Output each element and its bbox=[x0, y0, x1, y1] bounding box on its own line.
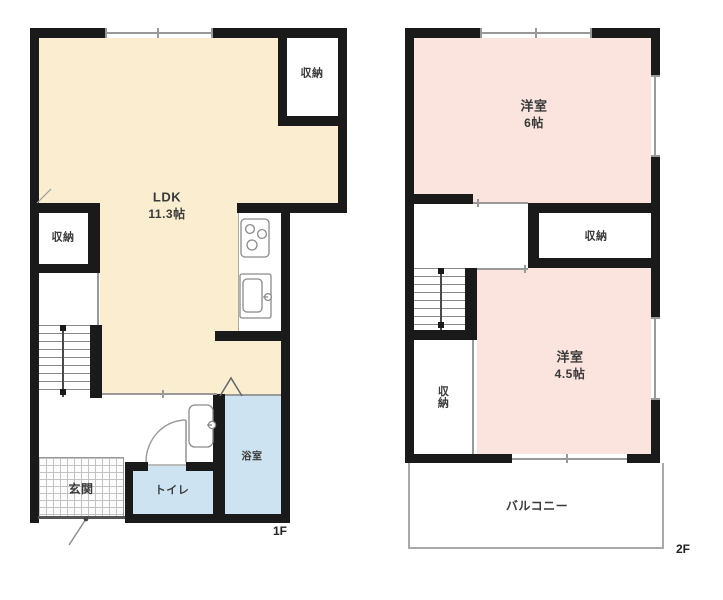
opening-tick bbox=[524, 265, 526, 273]
stair-post bbox=[438, 322, 444, 328]
window-tick bbox=[651, 398, 660, 400]
door-arc-icon bbox=[144, 418, 188, 464]
wall-left bbox=[30, 28, 39, 523]
wall-closet-tr-bottom bbox=[282, 116, 347, 126]
wall-bottom bbox=[125, 514, 290, 523]
wall-stairs-bottom bbox=[405, 330, 477, 340]
opening-hall-bedroom2 bbox=[477, 268, 528, 270]
wall-toilet-left bbox=[125, 462, 133, 523]
sliding-door-tick bbox=[162, 390, 164, 398]
window-tick bbox=[590, 28, 592, 38]
closet-top-label: 収納 bbox=[301, 68, 324, 81]
partition-hall-ldk bbox=[97, 273, 99, 325]
window-center-line bbox=[105, 32, 213, 34]
opening-tick bbox=[477, 199, 479, 207]
floor-plan-canvas: LDK 11.3帖 収納 収納 玄関 トイレ 浴室 1F bbox=[0, 0, 723, 600]
ldk-label: LDK bbox=[153, 191, 181, 206]
bedroom1-size-label: 6帖 bbox=[524, 117, 544, 131]
wall-left bbox=[405, 28, 414, 463]
window-tick bbox=[105, 28, 107, 38]
partition-closet-lower bbox=[472, 340, 474, 454]
wall-stairs-right bbox=[90, 325, 102, 398]
wall-closet-l-right bbox=[88, 203, 100, 273]
window-tick bbox=[651, 75, 660, 77]
window-tick bbox=[535, 28, 537, 38]
wall-bedroom1-bottom bbox=[405, 194, 473, 204]
stair-post bbox=[438, 268, 444, 274]
window-tick bbox=[651, 317, 660, 319]
bath-label: 浴室 bbox=[242, 451, 263, 463]
kitchen-fixtures-icon bbox=[239, 217, 275, 321]
wall-bottom-right bbox=[627, 454, 660, 463]
ldk-size-label: 11.3帖 bbox=[148, 208, 185, 222]
wall-step bbox=[237, 203, 347, 213]
closet-lower-label: 収納 bbox=[436, 386, 449, 409]
stair-rail bbox=[440, 268, 442, 330]
sliding-door-ldk bbox=[102, 393, 217, 395]
bedroom2-label: 洋室 bbox=[556, 351, 583, 366]
stairs-2f bbox=[414, 268, 465, 330]
wall-toilet-top-right bbox=[186, 462, 217, 471]
window-center-line bbox=[654, 317, 656, 400]
toilet-label: トイレ bbox=[155, 485, 190, 498]
window-tick bbox=[211, 28, 213, 38]
wall-closet-l-bottom bbox=[30, 264, 100, 273]
window-tick bbox=[480, 28, 482, 38]
balcony-label: バルコニー bbox=[506, 500, 568, 514]
wall-bottom-left bbox=[405, 454, 512, 463]
wall-closet-hall-bottom bbox=[528, 258, 660, 268]
entrance-door-swing-icon bbox=[64, 517, 90, 547]
closet-left-label: 収納 bbox=[52, 232, 75, 245]
floor-marker-1f: 1F bbox=[273, 524, 287, 538]
floor-marker-2f: 2F bbox=[676, 542, 690, 556]
wall-kitchen-bottom bbox=[215, 331, 290, 341]
toilet-doorway-line bbox=[148, 464, 186, 466]
wall-right-lower bbox=[281, 203, 290, 523]
window-center-line bbox=[654, 75, 656, 157]
stairs-1f bbox=[39, 325, 90, 397]
wall-closet-hall-top bbox=[528, 203, 660, 213]
balcony-door-tick bbox=[566, 454, 568, 463]
washbasin-icon bbox=[187, 403, 217, 451]
entrance-label: 玄関 bbox=[68, 483, 93, 497]
wall-closet-tr-left bbox=[278, 32, 287, 126]
balcony-door-line bbox=[512, 458, 627, 460]
closet-hall-label: 収納 bbox=[585, 231, 608, 244]
opening-hall-bedroom1 bbox=[473, 202, 528, 204]
stair-post bbox=[60, 389, 66, 395]
bedroom2-size-label: 4.5帖 bbox=[555, 368, 586, 382]
window-tick bbox=[157, 28, 159, 38]
bedroom1-label: 洋室 bbox=[520, 100, 547, 115]
stair-rail bbox=[62, 325, 64, 397]
stair-post bbox=[60, 325, 66, 331]
closet-door-mark-icon bbox=[36, 188, 52, 204]
window-tick bbox=[651, 155, 660, 157]
bath-door-icon bbox=[219, 376, 243, 398]
